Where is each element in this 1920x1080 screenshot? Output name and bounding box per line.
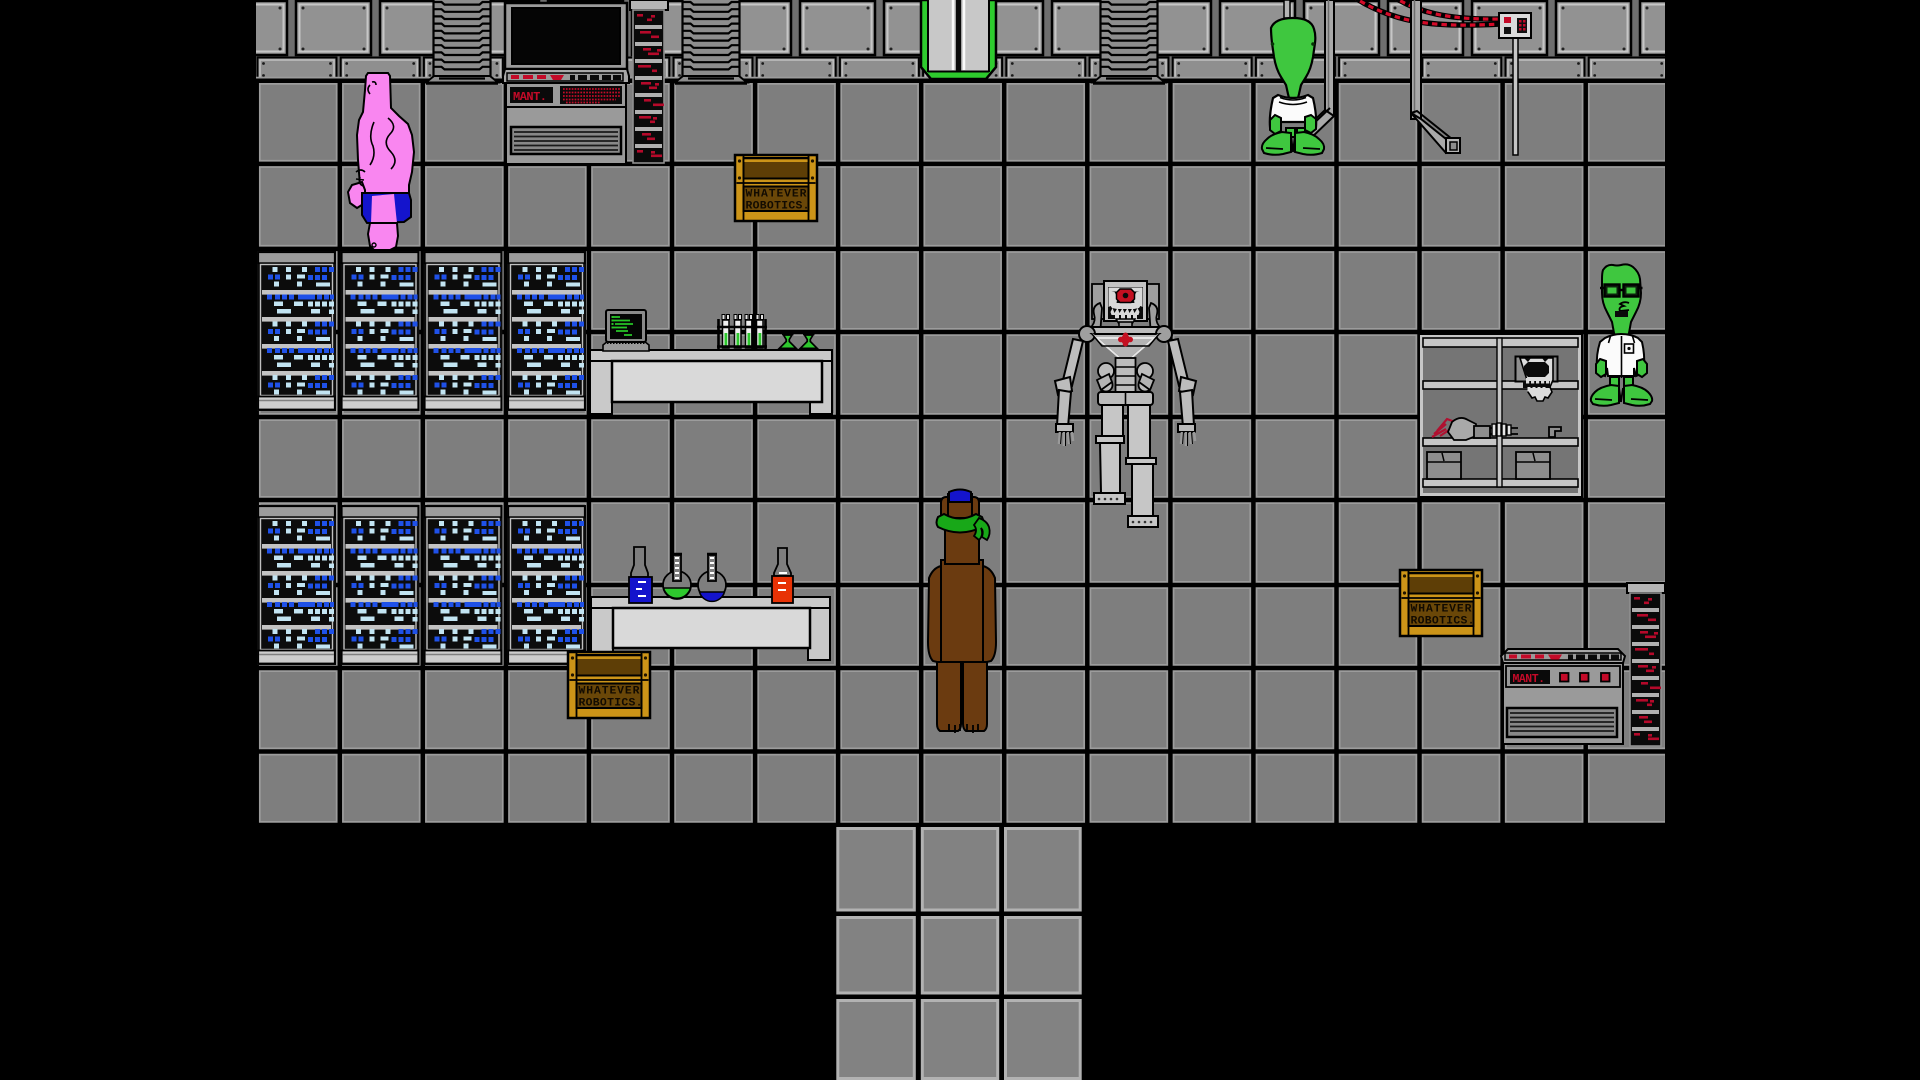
svg-text:MANT.: MANT.	[513, 90, 547, 104]
svg-text:MANT.: MANT.	[1513, 673, 1545, 686]
